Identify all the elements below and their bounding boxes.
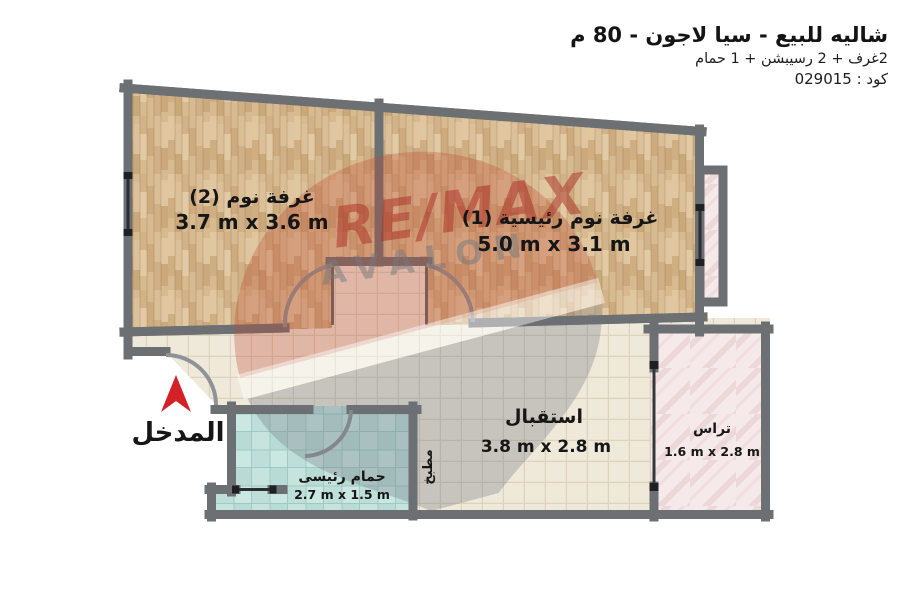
reception-dims: 3.8 m x 2.8 m: [481, 437, 611, 457]
bedroom2-label: غرفة نوم (2): [189, 186, 315, 208]
entrance-label: المدخل: [131, 418, 224, 448]
listing-code: كود : 029015: [570, 69, 888, 89]
reception-label: استقبال: [505, 406, 583, 428]
room-master-bedroom: غرفة نوم رئيسية (1) 5.0 m x 3.1 m: [462, 207, 659, 256]
room-bedroom-2: غرفة نوم (2) 3.7 m x 3.6 m: [175, 186, 328, 234]
floorplan-page: شاليه للبيع - سيا لاجون - 80 م 2غرف + 2 …: [0, 0, 900, 600]
listing-subtitle: 2غرف + 2 رسيبشن + 1 حمام: [570, 49, 888, 69]
terrace-floor: [651, 324, 768, 516]
kitchen-label: مطبخ: [421, 449, 436, 484]
listing-title: شاليه للبيع - سيا لاجون - 80 م: [570, 22, 888, 49]
bathroom-dims: 2.7 m x 1.5 m: [294, 487, 390, 502]
listing-header: شاليه للبيع - سيا لاجون - 80 م 2غرف + 2 …: [570, 22, 888, 89]
master-bedroom-label: غرفة نوم رئيسية (1): [462, 207, 659, 229]
master-bedroom-dims: 5.0 m x 3.1 m: [477, 232, 630, 256]
entrance-arrow-icon: [161, 375, 191, 412]
bathroom-label: حمام رئيسى: [298, 469, 385, 485]
room-kitchen: مطبخ: [421, 449, 436, 484]
terrace-dims: 1.6 m x 2.8 m: [664, 444, 760, 459]
terrace-label: تراس: [693, 421, 731, 437]
floorplan-svg: RE/MAX AVALON غرفة نوم (2) 3.7 m x 3.6 m…: [0, 0, 900, 600]
bedroom2-dims: 3.7 m x 3.6 m: [175, 210, 328, 234]
